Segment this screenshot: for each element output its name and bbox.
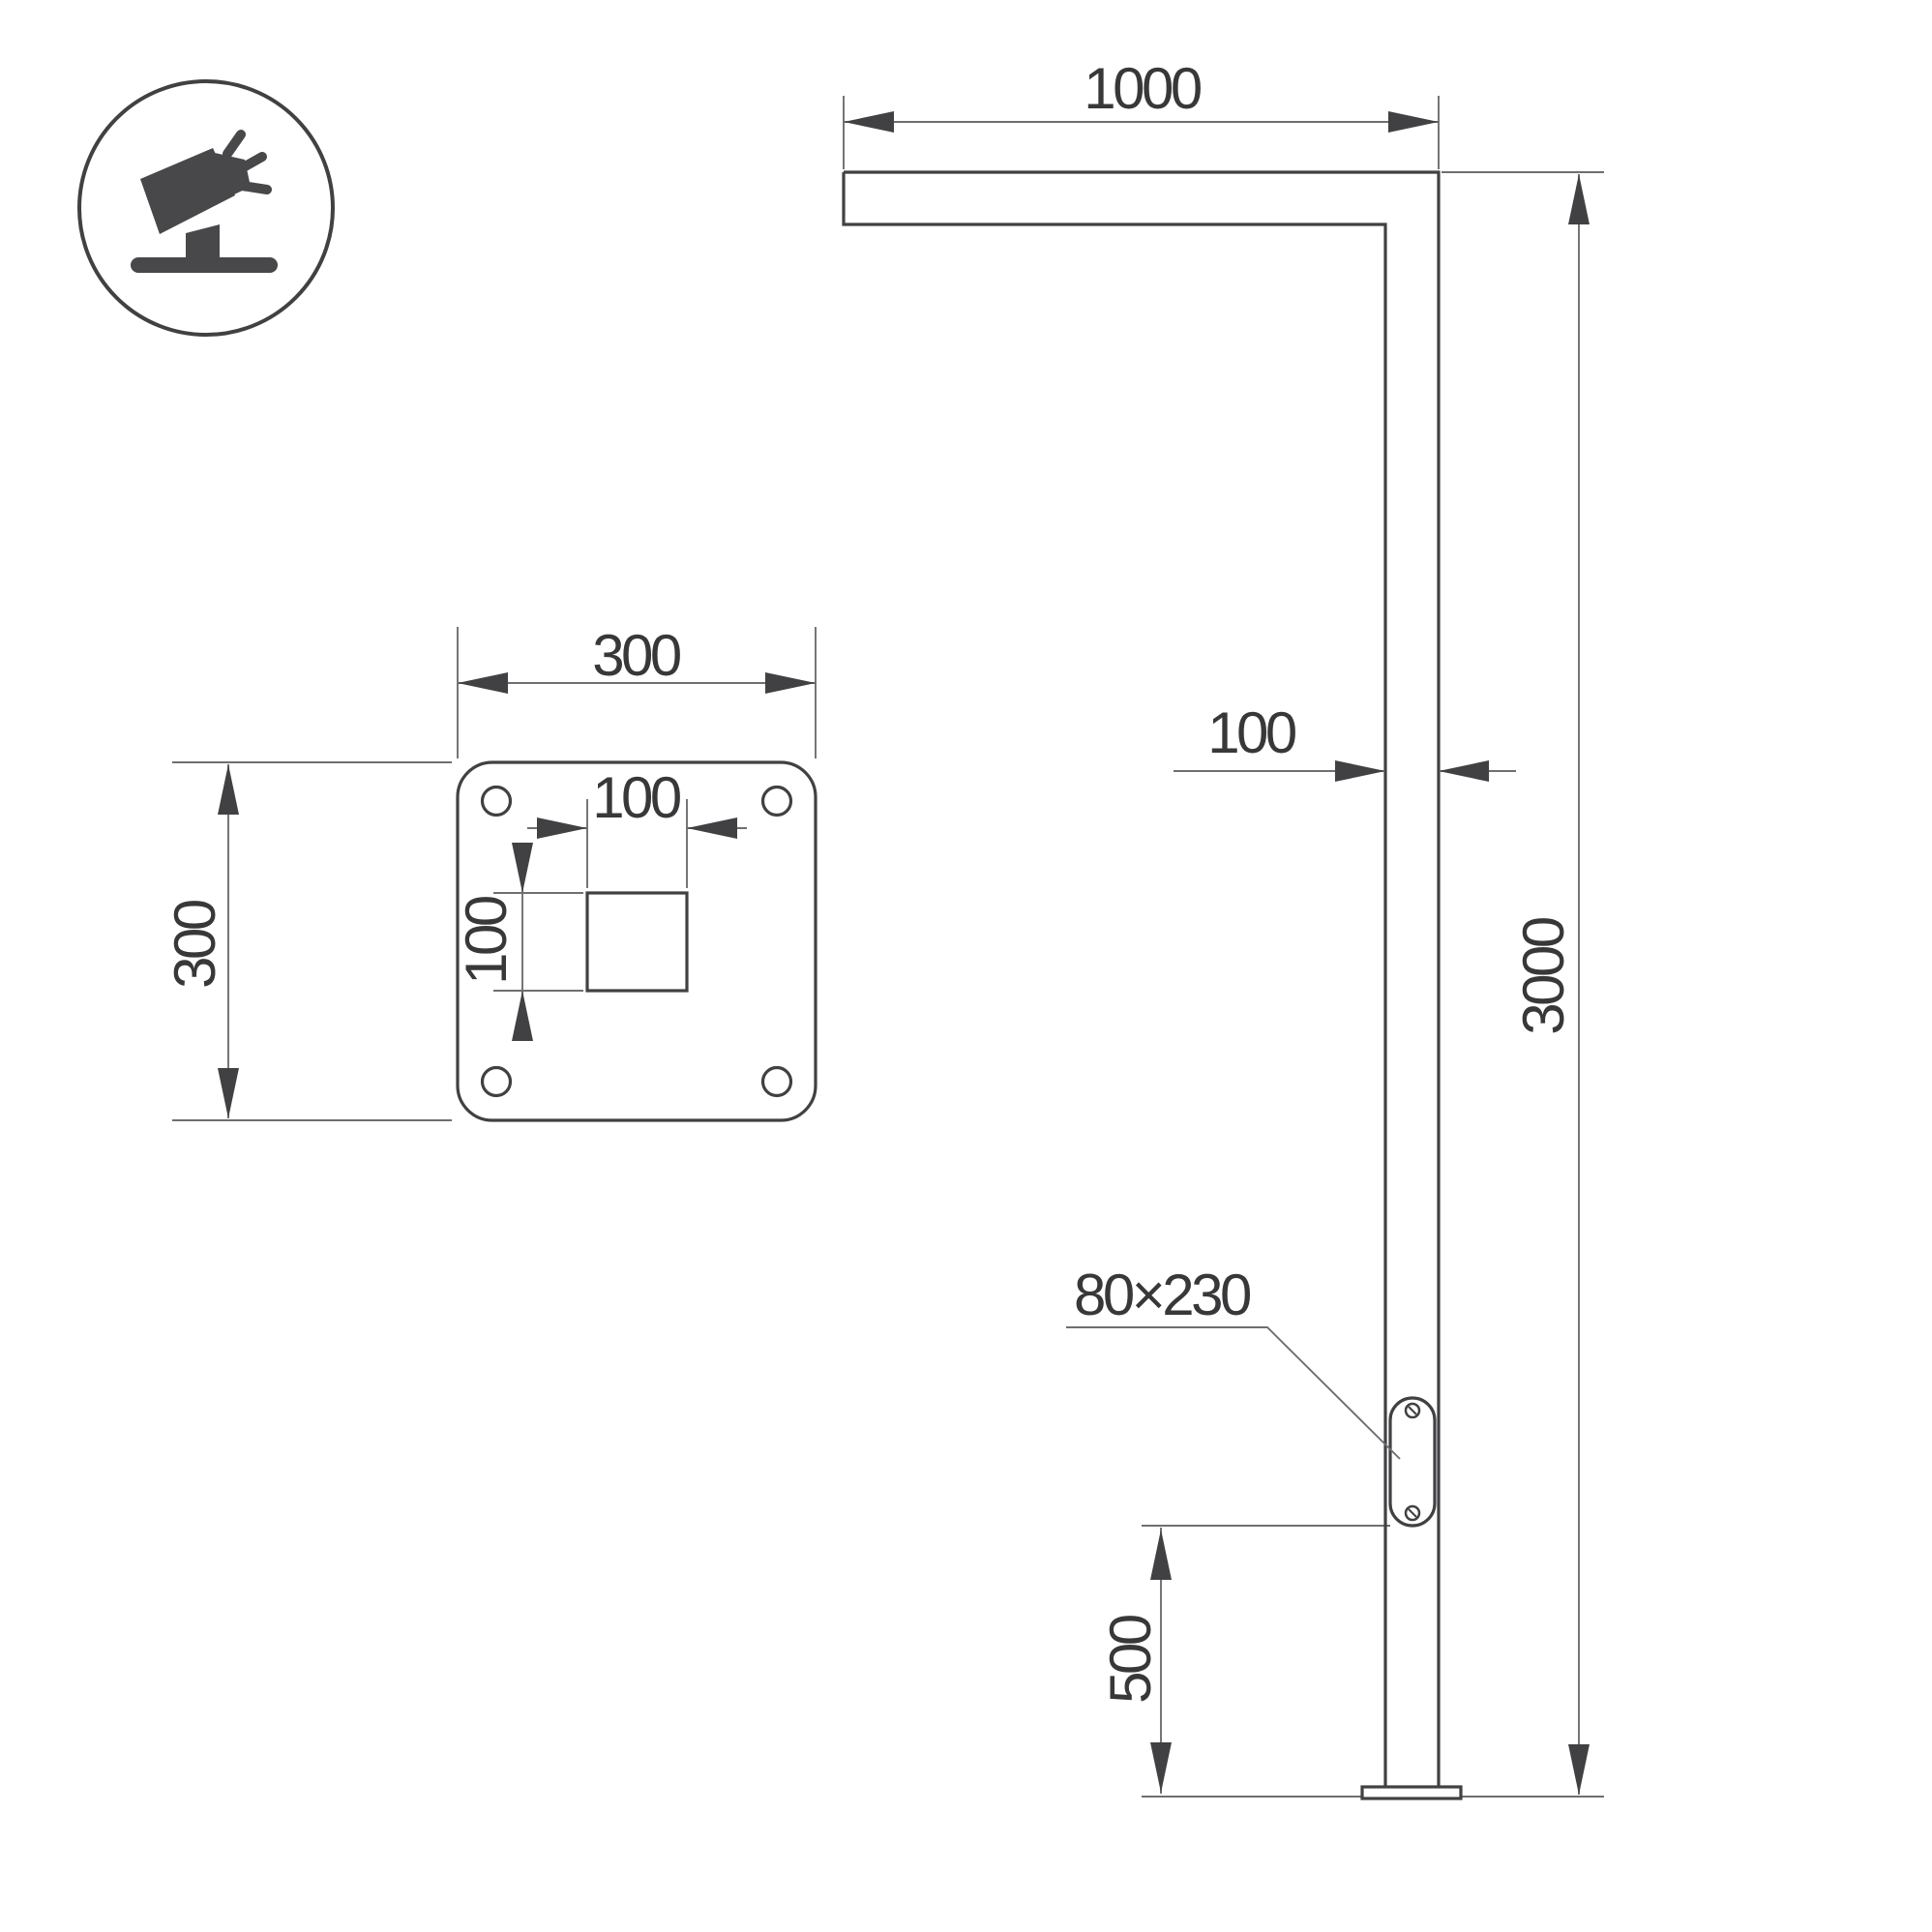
floodlight-base-icon: [131, 257, 278, 273]
technical-drawing-canvas: 300 300 100: [0, 0, 1932, 1932]
light-ray-icon: [240, 157, 262, 169]
arrowhead-right: [765, 672, 816, 694]
cutout-width-label: 100: [592, 765, 681, 830]
plate-height-label: 300: [163, 900, 227, 989]
arrowhead-right: [1335, 760, 1385, 782]
product-icon-badge: [79, 81, 333, 335]
light-ray-icon: [227, 134, 241, 154]
leader-line: [1066, 1327, 1400, 1459]
arrowhead-up: [1150, 1530, 1172, 1580]
arrowhead-down: [218, 1068, 239, 1118]
dim-arm-length: 1000: [844, 56, 1439, 169]
pole-foot-plate: [1362, 1787, 1461, 1798]
cutout-height-label: 100: [454, 896, 519, 985]
plate-width-label: 300: [592, 623, 681, 688]
dim-plate-height: 300: [163, 762, 452, 1120]
service-door: [1390, 1398, 1435, 1526]
door-height-label: 500: [1098, 1615, 1163, 1704]
dim-pole-width: 100: [1174, 700, 1516, 782]
pole-width-label: 100: [1207, 700, 1296, 765]
arrowhead-up: [218, 764, 239, 815]
arrowhead-down: [1568, 1744, 1590, 1795]
door-size-callout: 80×230: [1066, 1263, 1400, 1459]
arrowhead-left: [1439, 760, 1489, 782]
light-ray-icon: [242, 186, 267, 190]
dim-total-height: 3000: [1442, 172, 1604, 1795]
arrowhead-left: [458, 672, 508, 694]
pole-outline: [844, 172, 1439, 1788]
pole-side-view: 1000 100 3000 500: [844, 56, 1604, 1798]
total-height-label: 3000: [1511, 917, 1576, 1035]
arrowhead-down: [1150, 1742, 1172, 1793]
arm-length-label: 1000: [1084, 56, 1202, 121]
base-plate-top-view: 300 300 100: [163, 623, 816, 1120]
arrowhead-up: [1568, 174, 1590, 224]
arrowhead-right: [1388, 111, 1439, 133]
technical-drawing-page: 300 300 100: [0, 0, 1932, 1932]
dim-door-height: 500: [1098, 1526, 1390, 1794]
arrowhead-left: [844, 111, 894, 133]
door-size-label: 80×230: [1074, 1263, 1251, 1327]
dim-plate-width: 300: [458, 623, 816, 758]
